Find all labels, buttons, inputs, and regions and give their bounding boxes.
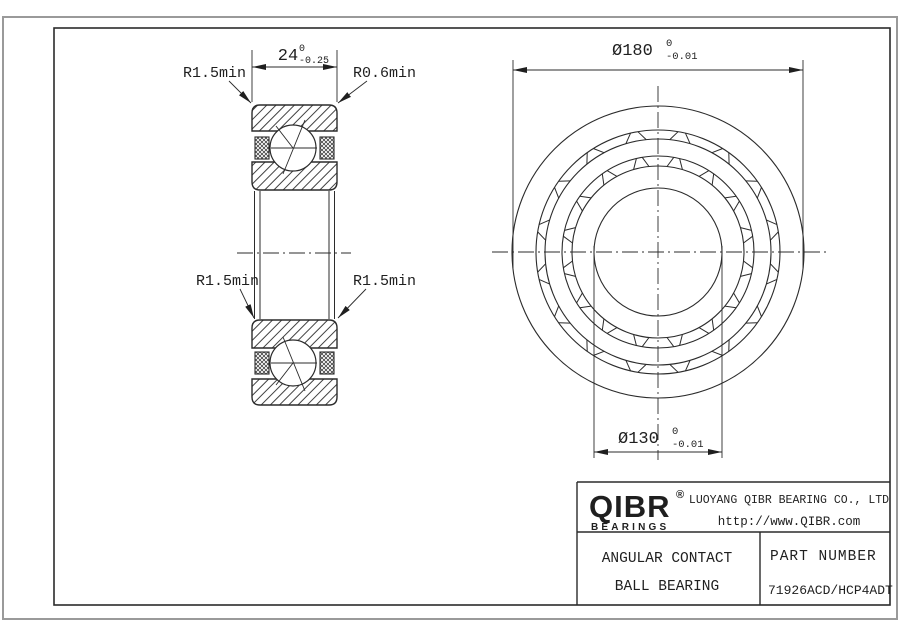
registered-mark: ® [676, 489, 684, 501]
dim-bore-tol-lower: -0.01 [672, 439, 704, 451]
cage-right [320, 352, 334, 374]
brand-logo-text: QIBR [589, 489, 671, 524]
dim-bore-value: Ø130 [618, 430, 659, 449]
dim-bore-tol-upper: 0 [672, 426, 678, 438]
label-r-mid-right: R1.5min [353, 273, 416, 290]
front-centerlines [492, 86, 826, 460]
title-block: QIBR ® BEARINGS LUOYANG QIBR BEARING CO.… [577, 482, 893, 605]
lower-section [252, 320, 337, 405]
front-view: Ø180 0 -0.01 Ø130 0 -0.01 [492, 38, 826, 460]
brand-subtitle: BEARINGS [591, 522, 669, 533]
dim-width-value: 24 [278, 47, 298, 66]
dim-outer-tol-upper: 0 [666, 38, 672, 50]
drawing-sheet: 24 0 -0.25 R1.5min R0.6min R1.5min R1.5m… [0, 0, 900, 636]
part-number-value: 71926ACD/HCP4ADT [768, 583, 893, 598]
brand-logo: QIBR ® BEARINGS [589, 489, 684, 533]
cage-right [320, 137, 334, 159]
label-r-top-left: R1.5min [183, 65, 246, 82]
bore-lines [255, 191, 335, 319]
cage-left [255, 352, 269, 374]
company-info: LUOYANG QIBR BEARING CO., LTD http://www… [689, 494, 889, 529]
dimension-width: 24 0 -0.25 [252, 44, 337, 102]
label-r-top-right: R0.6min [353, 65, 416, 82]
product-cell: ANGULAR CONTACT BALL BEARING [602, 551, 733, 595]
part-number-cell: PART NUMBER 71926ACD/HCP4ADT [768, 549, 893, 598]
engineering-drawing: 24 0 -0.25 R1.5min R0.6min R1.5min R1.5m… [0, 0, 900, 636]
dim-width-tol-upper: 0 [299, 44, 305, 55]
product-name-line1: ANGULAR CONTACT [602, 551, 733, 567]
label-r-mid-left: R1.5min [196, 273, 259, 290]
dim-outer-value: Ø180 [612, 42, 653, 61]
company-name: LUOYANG QIBR BEARING CO., LTD [689, 494, 889, 507]
section-view: 24 0 -0.25 R1.5min R0.6min R1.5min R1.5m… [183, 44, 416, 405]
cage-left [255, 137, 269, 159]
part-number-label: PART NUMBER [770, 549, 877, 565]
company-website: http://www.QIBR.com [718, 515, 861, 529]
dim-outer-tol-lower: -0.01 [666, 51, 698, 63]
product-name-line2: BALL BEARING [615, 579, 719, 595]
radius-labels: R1.5min R0.6min R1.5min R1.5min [183, 65, 416, 318]
dim-width-tol-lower: -0.25 [299, 56, 329, 67]
upper-section [252, 105, 337, 190]
